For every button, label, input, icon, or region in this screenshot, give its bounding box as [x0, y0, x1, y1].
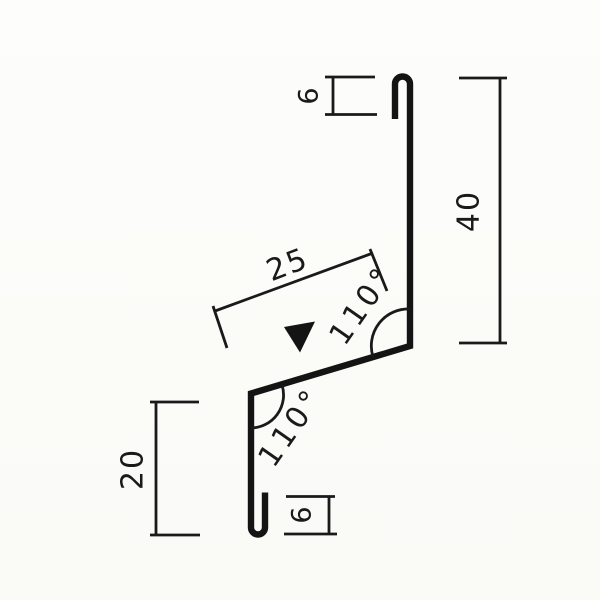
- direction-triangle-icon: [284, 322, 315, 353]
- dim-label-top-hem: 6: [294, 87, 325, 104]
- angle-label-bottom: 110°: [252, 381, 331, 473]
- dim-slope-tick-left: [213, 306, 227, 348]
- dim-left-leg: [150, 402, 200, 535]
- technical-drawing: 6 40 25 20 6 110°: [0, 0, 600, 600]
- dim-label-slope: 25: [262, 241, 314, 289]
- dim-label-bottom-hem: 6: [287, 506, 318, 523]
- dim-top-hem: [325, 77, 377, 115]
- dim-label-right-leg: 40: [452, 190, 487, 232]
- dim-label-left-leg: 20: [116, 448, 151, 490]
- profile-drawing-svg: 6 40 25 20 6 110°: [0, 0, 600, 600]
- angle-label-top: 110°: [323, 259, 402, 351]
